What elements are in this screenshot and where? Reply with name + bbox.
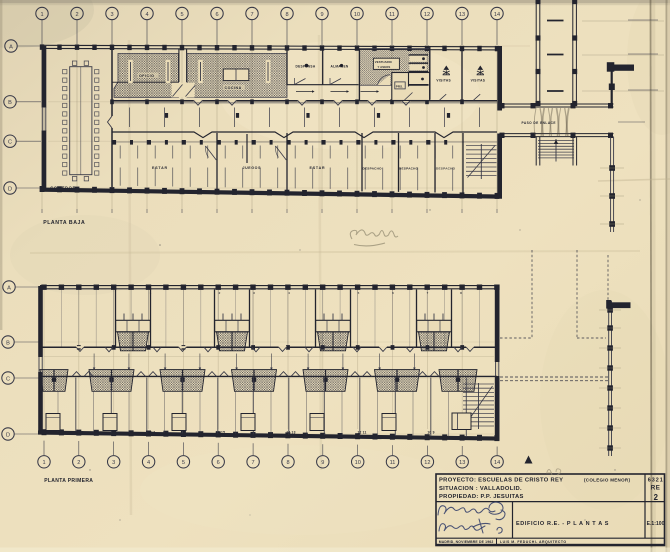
svg-text:C: C bbox=[8, 140, 12, 146]
svg-text:16 15: 16 15 bbox=[216, 430, 225, 434]
svg-text:5: 5 bbox=[182, 460, 185, 466]
svg-text:7: 7 bbox=[252, 460, 255, 466]
svg-text:11: 11 bbox=[390, 460, 396, 466]
svg-text:C: C bbox=[6, 376, 10, 382]
svg-text:13: 13 bbox=[459, 12, 465, 18]
svg-text:PRS.: PRS. bbox=[396, 84, 403, 88]
svg-text:18 17: 18 17 bbox=[146, 430, 155, 434]
svg-text:14: 14 bbox=[494, 12, 500, 18]
svg-text:A: A bbox=[9, 44, 13, 50]
svg-text:ALMACEN: ALMACEN bbox=[331, 64, 349, 68]
svg-text:14: 14 bbox=[494, 460, 500, 466]
svg-text:ESTAR: ESTAR bbox=[152, 166, 168, 170]
svg-text:(COLEGIO MENOR): (COLEGIO MENOR) bbox=[584, 477, 630, 482]
svg-text:SITUACION : VALLADOLID.: SITUACION : VALLADOLID. bbox=[439, 486, 522, 492]
svg-text:OFICIO: OFICIO bbox=[139, 74, 154, 78]
svg-text:VESTUARIO: VESTUARIO bbox=[375, 60, 393, 64]
svg-text:DESPACHO: DESPACHO bbox=[363, 167, 383, 171]
svg-text:5: 5 bbox=[180, 12, 183, 18]
svg-text:12 11: 12 11 bbox=[357, 430, 366, 434]
svg-text:JUEGOS: JUEGOS bbox=[243, 166, 262, 170]
svg-text:PROPIEDAD: P.P. JESUITAS: PROPIEDAD: P.P. JESUITAS bbox=[439, 494, 524, 500]
svg-text:EDIFICIO R.E. - P L A N T A S: EDIFICIO R.E. - P L A N T A S bbox=[516, 521, 609, 527]
svg-text:PLANTA PRIMERA: PLANTA PRIMERA bbox=[44, 478, 93, 484]
svg-text:RE: RE bbox=[651, 484, 661, 491]
svg-text:DESPACHO: DESPACHO bbox=[399, 167, 419, 171]
svg-text:6321: 6321 bbox=[648, 477, 664, 483]
svg-text:2: 2 bbox=[75, 12, 78, 18]
svg-text:13: 13 bbox=[459, 460, 465, 466]
svg-text:E.1:100: E.1:100 bbox=[647, 521, 665, 527]
svg-text:D: D bbox=[8, 186, 12, 192]
svg-text:10: 10 bbox=[354, 12, 360, 18]
svg-text:PLANTA BAJA: PLANTA BAJA bbox=[43, 220, 85, 226]
svg-text:D: D bbox=[6, 432, 10, 438]
svg-text:1: 1 bbox=[42, 460, 45, 466]
svg-text:20 19: 20 19 bbox=[74, 430, 83, 434]
svg-text:2: 2 bbox=[654, 493, 659, 502]
svg-text:14 13: 14 13 bbox=[286, 430, 295, 434]
svg-text:7: 7 bbox=[250, 12, 253, 18]
svg-text:Y ASEOS: Y ASEOS bbox=[378, 65, 391, 69]
svg-text:3: 3 bbox=[110, 12, 113, 18]
svg-text:10 9: 10 9 bbox=[427, 430, 434, 434]
svg-text:1: 1 bbox=[40, 12, 43, 18]
svg-text:COMEDOR: COMEDOR bbox=[50, 185, 76, 190]
svg-text:8: 8 bbox=[285, 12, 288, 18]
svg-text:PROYECTO: ESCUELAS DE CRISTO R: PROYECTO: ESCUELAS DE CRISTO REY bbox=[439, 478, 563, 484]
svg-text:A: A bbox=[7, 285, 11, 291]
svg-text:6: 6 bbox=[215, 12, 218, 18]
svg-text:MADRID, NOVIEMBRE DE 1962: MADRID, NOVIEMBRE DE 1962 bbox=[439, 540, 494, 544]
svg-text:PASO DE ENLACE: PASO DE ENLACE bbox=[522, 121, 556, 125]
svg-text:VISITAS: VISITAS bbox=[471, 78, 486, 82]
svg-text:VISITAS: VISITAS bbox=[436, 78, 451, 82]
svg-text:B: B bbox=[6, 340, 10, 346]
svg-text:8: 8 bbox=[286, 460, 289, 466]
svg-text:11: 11 bbox=[389, 12, 395, 18]
svg-text:9: 9 bbox=[321, 460, 324, 466]
svg-text:DESPACHO: DESPACHO bbox=[436, 167, 456, 171]
svg-text:10: 10 bbox=[355, 460, 361, 466]
svg-text:4: 4 bbox=[145, 12, 148, 18]
svg-text:12: 12 bbox=[424, 12, 430, 18]
svg-text:B: B bbox=[8, 100, 12, 106]
svg-text:LUIS M. FEDUCHI- ARQUITECTO: LUIS M. FEDUCHI- ARQUITECTO bbox=[500, 540, 567, 544]
svg-text:2: 2 bbox=[77, 460, 80, 466]
svg-text:12: 12 bbox=[424, 460, 430, 466]
svg-text:COCINA: COCINA bbox=[225, 86, 242, 90]
svg-text:4: 4 bbox=[147, 460, 150, 466]
svg-text:6: 6 bbox=[217, 460, 220, 466]
svg-text:3: 3 bbox=[112, 460, 115, 466]
svg-text:9: 9 bbox=[320, 12, 323, 18]
svg-text:ESTAR: ESTAR bbox=[310, 166, 326, 170]
